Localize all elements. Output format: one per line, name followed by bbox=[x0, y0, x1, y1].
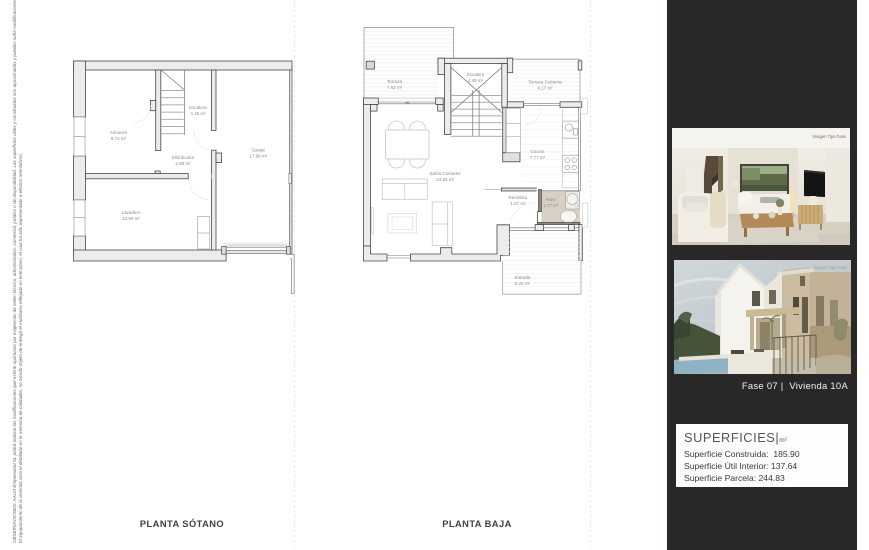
svg-text:2.59 m²: 2.59 m² bbox=[175, 161, 191, 166]
svg-text:Escalera: Escalera bbox=[467, 72, 485, 77]
svg-text:OBSERVACIONES: AALVI Empresari: OBSERVACIONES: AALVI Empresarial SL podr… bbox=[12, 0, 17, 543]
svg-text:Garaje: Garaje bbox=[252, 148, 266, 153]
svg-text:Almacén: Almacén bbox=[110, 130, 128, 135]
svg-text:Imagen Tipo Fase: Imagen Tipo Fase bbox=[813, 265, 847, 270]
svg-text:1.77 m²: 1.77 m² bbox=[543, 203, 559, 208]
svg-text:9.74 m²: 9.74 m² bbox=[111, 136, 127, 141]
svg-text:6.25 m²: 6.25 m² bbox=[515, 281, 531, 286]
svg-text:7.62 m²: 7.62 m² bbox=[387, 85, 403, 90]
svg-text:Salón Comedor: Salón Comedor bbox=[430, 171, 462, 176]
svg-text:1.07 m²: 1.07 m² bbox=[510, 201, 526, 206]
svg-text:Terraza: Terraza bbox=[387, 79, 403, 84]
svg-text:4.45 m²: 4.45 m² bbox=[190, 111, 206, 116]
svg-text:4.17 m²: 4.17 m² bbox=[537, 86, 553, 91]
svg-text:Escalera: Escalera bbox=[189, 105, 207, 110]
svg-text:PLANTA SÓTANO: PLANTA SÓTANO bbox=[140, 518, 224, 529]
svg-text:Distribuidor: Distribuidor bbox=[172, 155, 195, 160]
svg-text:Lavadero: Lavadero bbox=[122, 210, 141, 215]
svg-text:4.45 m²: 4.45 m² bbox=[468, 78, 484, 83]
svg-text:13.94 m²: 13.94 m² bbox=[122, 216, 140, 221]
svg-text:PLANTA BAJA: PLANTA BAJA bbox=[442, 519, 512, 529]
svg-text:Entrada: Entrada bbox=[515, 275, 531, 280]
svg-text:23.84 m²: 23.84 m² bbox=[436, 177, 454, 182]
svg-text:Imagen Tipo Fase: Imagen Tipo Fase bbox=[812, 134, 846, 139]
svg-text:El equipamiento de la vivienda: El equipamiento de la vivienda será el d… bbox=[18, 153, 23, 543]
svg-text:Aseo: Aseo bbox=[545, 197, 556, 202]
svg-text:Cocina: Cocina bbox=[530, 149, 545, 154]
svg-text:7.77 m²: 7.77 m² bbox=[530, 155, 546, 160]
svg-text:17.99 m²: 17.99 m² bbox=[249, 154, 267, 159]
svg-text:Terraza Cubierta: Terraza Cubierta bbox=[528, 80, 562, 85]
svg-text:Recibidor: Recibidor bbox=[508, 195, 528, 200]
